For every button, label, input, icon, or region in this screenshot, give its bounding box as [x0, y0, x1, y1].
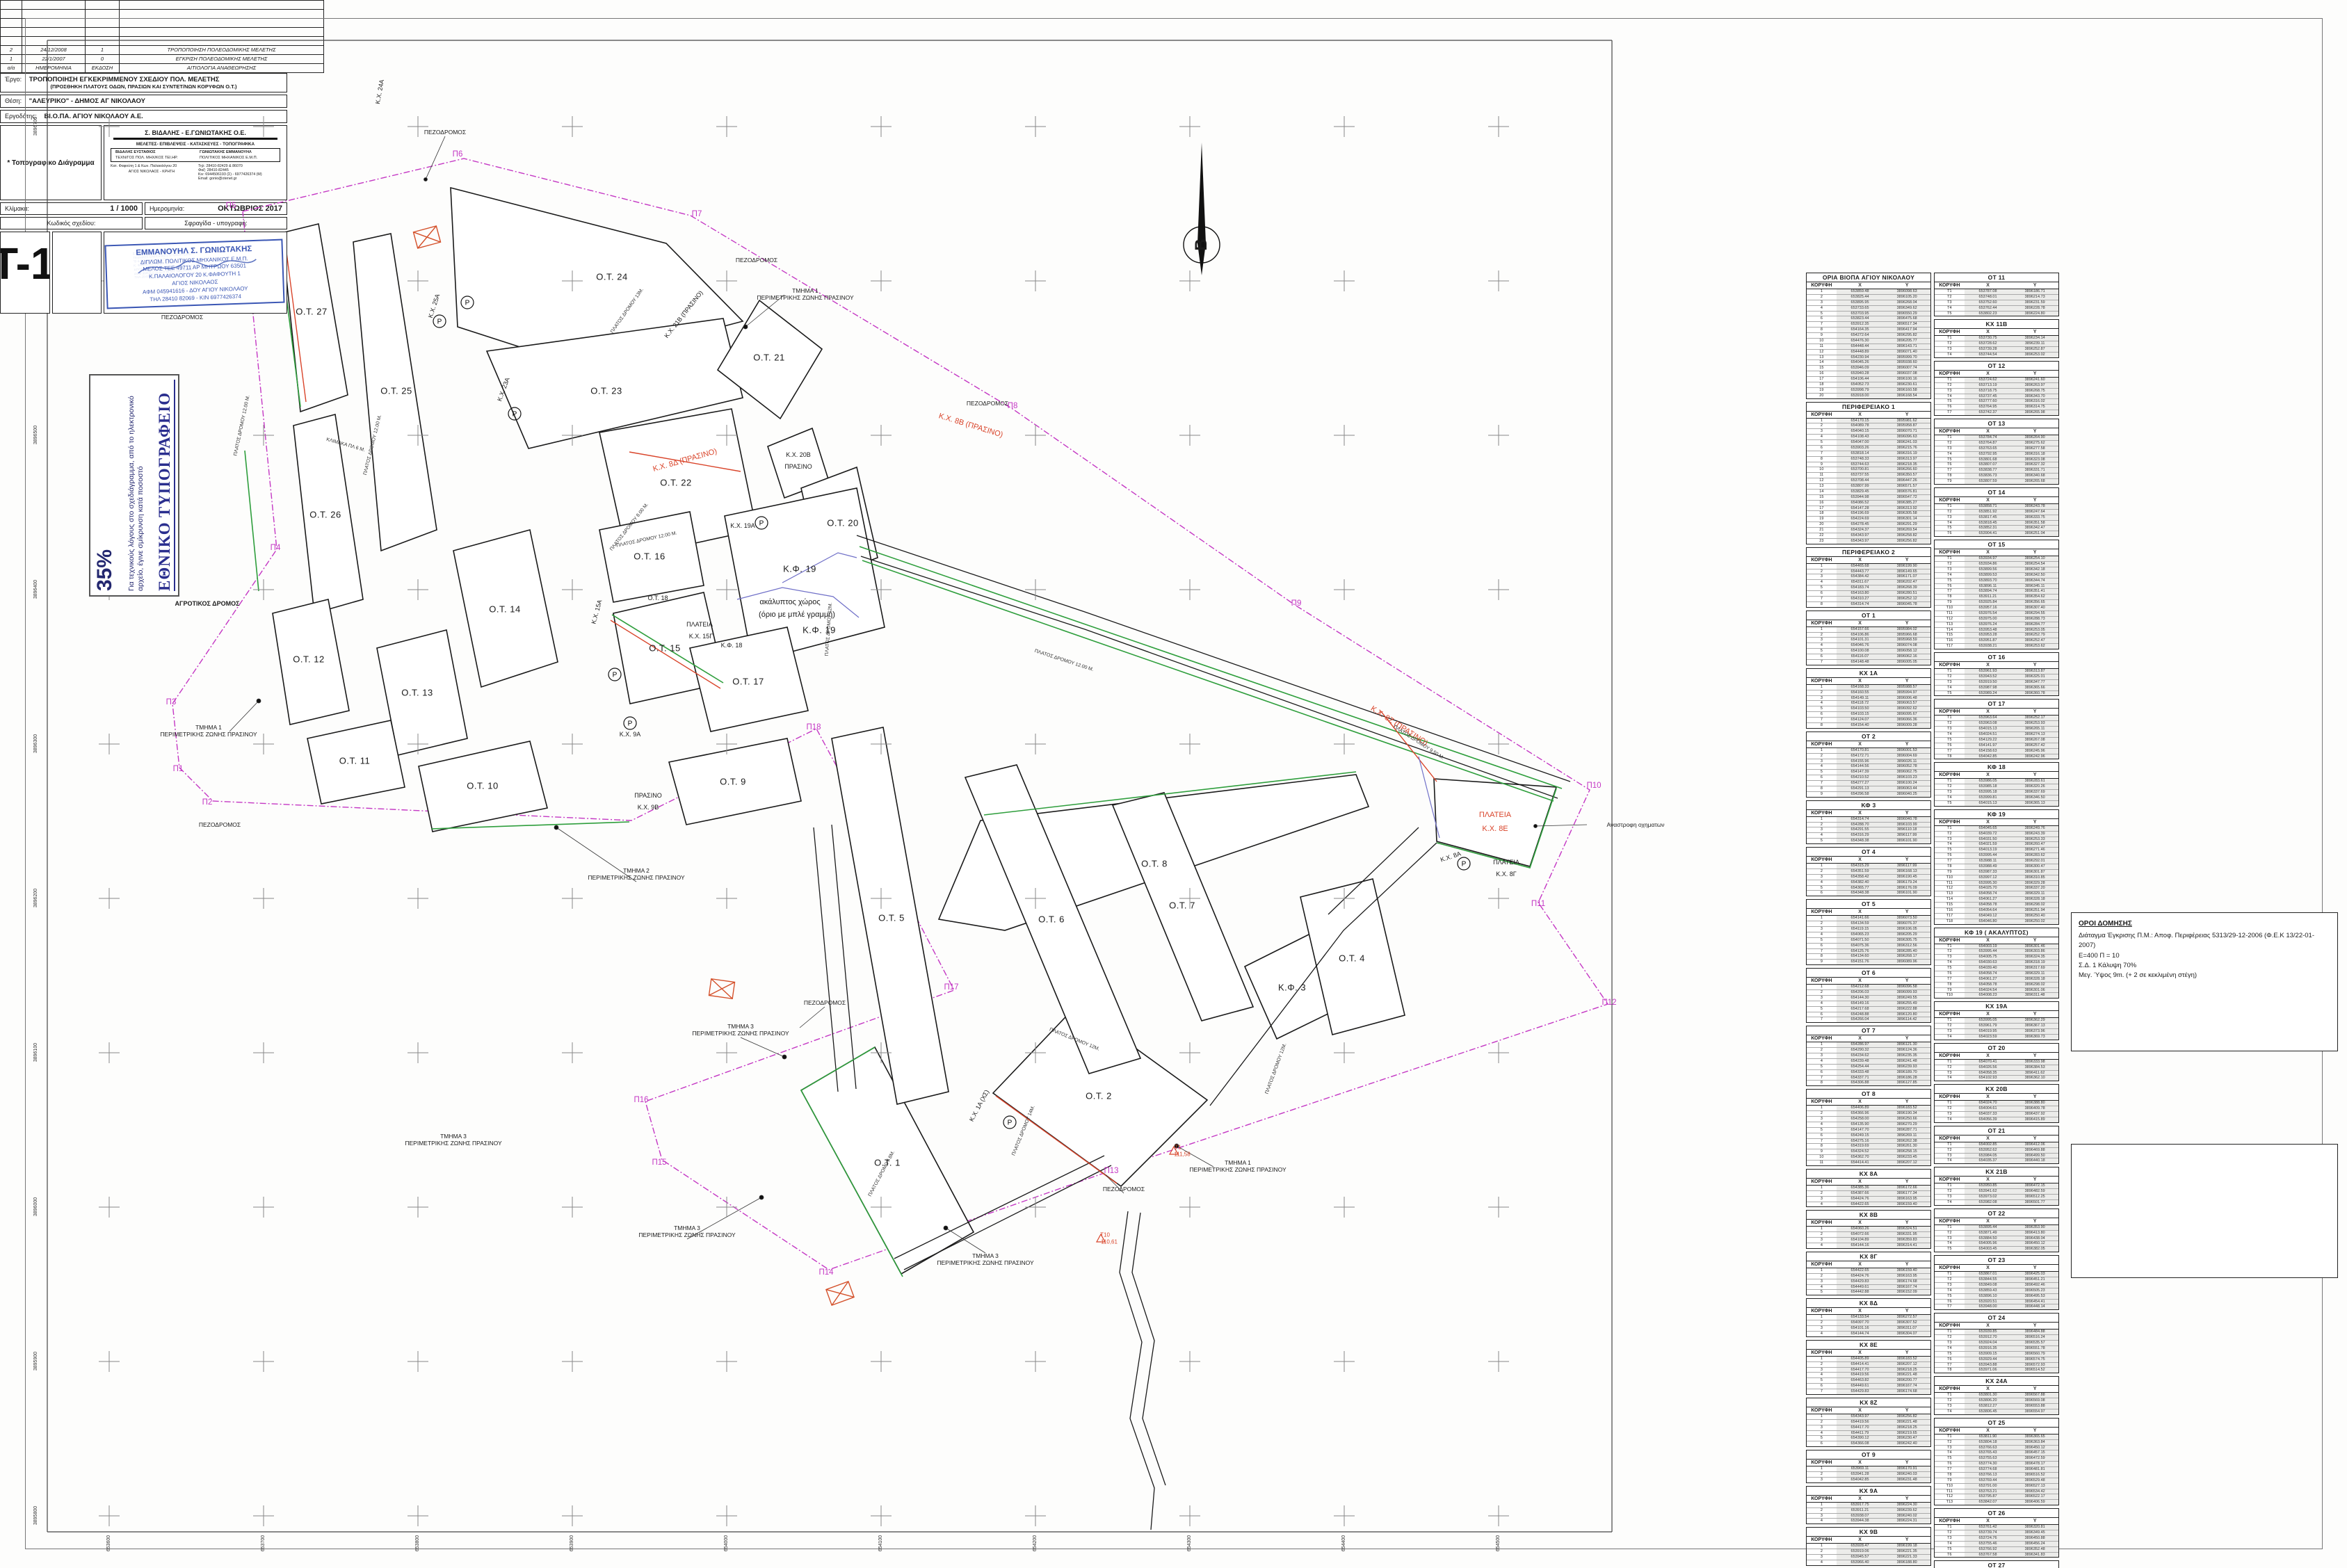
column-header: Y: [2011, 1011, 2058, 1017]
coordinate-table: ΚΧ 1ΑΚΟΡΥΦΗXY1654168.333895988.572654160…: [1806, 668, 1931, 729]
table-row: 3654291.553896110.18: [1807, 827, 1930, 833]
column-header: ΚΟΡΥΦΗ: [1807, 1350, 1837, 1356]
map-label: Κ.Χ. 9Α: [620, 731, 641, 738]
map-label: Κ.Φ. 19: [783, 564, 816, 574]
table-row: 5654217.683896222.88: [1807, 1007, 1930, 1012]
table-row: 2654172.713896004.69: [1807, 754, 1930, 759]
table-row: T4653859.433896505.23: [1935, 1288, 2058, 1294]
column-header: ΚΟΡΥΦΗ: [1935, 1053, 1965, 1059]
column-header: X: [1965, 1094, 2012, 1100]
table-row: T10653957.163896307.40: [1935, 606, 2058, 611]
coordinate-table-title: ΚΧ 8Γ: [1807, 1252, 1930, 1261]
table-row: 6653903.263896215.76: [1807, 446, 1930, 451]
table-row: 15653944.983896547.72: [1807, 495, 1930, 501]
coordinate-table-title: ΚΧ 24Α: [1935, 1377, 2058, 1386]
table-row: T1653761.423896320.81: [1935, 1525, 2058, 1530]
table-row: T7653988.113896292.01: [1935, 859, 2058, 864]
table-row: 6654103.153896095.67: [1807, 712, 1930, 718]
column-header: ΚΟΡΥΦΗ: [1935, 772, 1965, 778]
column-header: Y: [2011, 1053, 2058, 1059]
table-row: 7654310.273896252.12: [1807, 597, 1930, 602]
table-row: T2653851.923896247.64: [1935, 510, 2058, 515]
table-row: T13653976.243896284.77: [1935, 622, 2058, 628]
map-label: Ο.Τ. 7: [1169, 900, 1195, 911]
table-row: T4654035.373896440.18: [1935, 1158, 2058, 1163]
table-row: T10653791.003896527.13: [1935, 1484, 2058, 1489]
map-label: Π1: [173, 765, 184, 773]
table-row: T1653784.743896264.90: [1935, 435, 2058, 441]
coordinate-table-title: ΚΦ 19: [1935, 810, 2058, 819]
coordinate-table: ΚΧ 9ΒΚΟΡΥΦΗXY1653928.473896199.182653919…: [1806, 1527, 1931, 1566]
table-row: 20653918.003896168.54: [1807, 394, 1930, 398]
table-row: T2653748.013896214.73: [1935, 295, 2058, 300]
table-row: 6654075.363896312.56: [1807, 944, 1930, 949]
table-row: T5653777.603896316.02: [1935, 399, 2058, 405]
table-row: T3654019.953896373.96: [1935, 1029, 2058, 1035]
svg-text:P: P: [1462, 861, 1467, 868]
svg-text:P: P: [759, 520, 764, 528]
table-row: 7654266.043896114.42: [1807, 1017, 1930, 1022]
bottom-axis-tick: 654300: [1187, 1535, 1192, 1551]
column-header: Y: [2011, 329, 2058, 335]
table-row: 3653938.073896240.02: [1807, 1514, 1930, 1519]
table-row: 12654448.893896071.40: [1807, 350, 1930, 355]
table-row: 22654343.973896258.82: [1807, 533, 1930, 539]
table-row: T2653912.703896516.24: [1935, 1335, 2058, 1341]
table-row: 6654210.523896103.23: [1807, 775, 1930, 781]
building-terms-line: Ε=400 Π = 10: [2079, 951, 2330, 961]
table-row: T6653929.443896574.75: [1935, 1357, 2058, 1363]
column-header: ΚΟΡΥΦΗ: [1935, 662, 1965, 668]
building-terms-line: Σ.Δ. 1 Κάλυψη 70%: [2079, 961, 2330, 971]
table-row: 2654106.863895966.68: [1807, 633, 1930, 638]
table-row: T8653911.213896354.62: [1935, 595, 2058, 600]
table-row: 1654406.893896183.52: [1807, 1106, 1930, 1111]
column-header: Y: [2011, 282, 2058, 289]
reduction-percent: 35%: [93, 549, 117, 591]
table-row: T2653961.793896367.13: [1935, 1024, 2058, 1029]
map-label: 110,61: [1101, 1239, 1118, 1245]
map-label: Ο.Τ. 2: [1086, 1091, 1112, 1101]
map-label: Ο.Τ. 22: [660, 478, 691, 488]
table-row: T7653894.743896351.41: [1935, 589, 2058, 595]
coordinate-table: ΟΤ 4ΚΟΡΥΦΗXY1654315.293896117.992654351.…: [1806, 847, 1931, 896]
table-row: T15654058.783896298.02: [1935, 903, 2058, 908]
table-row: 2654443.773896149.65: [1807, 569, 1930, 575]
map-label: Ο.Τ. 20: [827, 518, 858, 528]
parking-icon: P: [1003, 1116, 1016, 1129]
table-row: 19654224.693896301.14: [1807, 517, 1930, 522]
map-label: ΠΛΑΤΕΙΑ: [686, 621, 713, 628]
column-header: Y: [2011, 1386, 2058, 1392]
coordinate-table: ΚΧ 8ΖΚΟΡΥΦΗXY1654343.973896256.822654419…: [1806, 1398, 1931, 1447]
coordinate-tables-column-2: ΟΤ 11ΚΟΡΥΦΗXYT1653787.083896186.71T26537…: [1934, 273, 2059, 1568]
column-header: ΚΟΡΥΦΗ: [1935, 1386, 1965, 1392]
coordinate-table: ΚΧ 24ΑΚΟΡΥΦΗXYT1653801.303896567.88T2653…: [1934, 1376, 2059, 1415]
map-label: Π6: [453, 150, 463, 159]
table-row: 3654417.703896218.25: [1807, 1425, 1930, 1431]
table-row: 2654206.033896099.93: [1807, 990, 1930, 996]
table-row: 6654449.613896167.74: [1807, 1384, 1930, 1389]
column-header: ΚΟΡΥΦΗ: [1807, 282, 1837, 289]
building-terms-line: Μεγ. Ύψος 9m. (+ 2 σε κεκλιμένη στέγη): [2079, 971, 2330, 980]
column-header: Y: [1883, 1308, 1930, 1314]
column-header: X: [1965, 1135, 2012, 1142]
column-header: ΚΟΡΥΦΗ: [1807, 810, 1837, 816]
column-header: X: [1965, 772, 2012, 778]
table-row: T4654030.633896318.19: [1935, 960, 2058, 966]
map-label: Π14: [818, 1268, 833, 1277]
table-row: T4654102.933896362.10: [1935, 1076, 2058, 1081]
column-header: Y: [1883, 412, 1930, 418]
column-header: ΚΟΡΥΦΗ: [1935, 1011, 1965, 1017]
column-header: ΚΟΡΥΦΗ: [1935, 1265, 1965, 1271]
coordinate-table: ΟΤ 11ΚΟΡΥΦΗXYT1653787.083896186.71T26537…: [1934, 273, 2059, 316]
coordinate-table: ΚΧ 8ΑΚΟΡΥΦΗXY1654385.363896172.662654387…: [1806, 1169, 1931, 1208]
table-row: 5654183.743896268.39: [1807, 585, 1930, 591]
svg-text:P: P: [437, 318, 442, 326]
column-header: ΚΟΡΥΦΗ: [1807, 412, 1837, 418]
column-header: Y: [1883, 620, 1930, 627]
table-row: T4654021.593896260.47: [1935, 842, 2058, 848]
column-header: Y: [1883, 1537, 1930, 1543]
table-row: T5653755.633896472.59: [1935, 1456, 2058, 1462]
map-label: Κ.Χ. 9Β: [638, 804, 659, 811]
table-row: T1653730.753896234.14: [1935, 336, 2058, 341]
table-row: 4654144.563896052.78: [1807, 764, 1930, 770]
table-row: T6653995.443896283.62: [1935, 853, 2058, 859]
coordinate-table: ΟΤ 5ΚΟΡΥΦΗXY1654141.663896073.502654134.…: [1806, 899, 1931, 965]
column-header: ΚΟΡΥΦΗ: [1807, 1035, 1837, 1042]
table-row: 4654311.673896202.47: [1807, 580, 1930, 585]
table-row: 8654319.693896261.30: [1807, 1144, 1930, 1149]
table-row: T2653963.083896253.93: [1935, 721, 2058, 727]
column-header: Y: [1883, 1407, 1930, 1414]
table-row: T4653987.983896365.66: [1935, 686, 2058, 691]
table-row: T7654061.273896328.18: [1935, 977, 2058, 983]
table-row: 1654170.153895981.62: [1807, 419, 1930, 424]
table-row: T3653899.563896342.18: [1935, 567, 2058, 573]
table-row: T7653838.773896331.71: [1935, 468, 2058, 474]
map-label: ΠΕΡΙΜΕΤΡΙΚΗΣ ΖΩΝΗΣ ΠΡΑΣΙΝΟΥ: [937, 1259, 1033, 1266]
table-row: T11653995.303896329.28: [1935, 881, 2058, 887]
coordinate-table: ΟΤ 8ΚΟΡΥΦΗXY1654406.893896183.522654366.…: [1806, 1089, 1931, 1166]
coordinate-table-title: ΟΤ 22: [1935, 1209, 2058, 1218]
column-header: ΚΟΡΥΦΗ: [1807, 1407, 1837, 1414]
table-row: T4654023.593896369.73: [1935, 1035, 2058, 1040]
table-row: 18654052.733896230.61: [1807, 382, 1930, 388]
column-header: ΚΟΡΥΦΗ: [1807, 1496, 1837, 1502]
table-row: T4653899.533896342.50: [1935, 573, 2058, 579]
coordinate-table-title: ΠΕΡΙΦΕΡΕΙΑΚΟ 1: [1807, 403, 1930, 412]
column-header: ΚΟΡΥΦΗ: [1807, 741, 1837, 747]
engineer-stamp: ΕΜΜΑΝΟΥΗΛ Σ. ΓΩΝΙΩΤΑΚΗΣ ΔΙΠΛΩΜ. ΠΟΛΙΤΙΚΟ…: [104, 239, 284, 309]
table-row: T6653774.303896478.17: [1935, 1462, 2058, 1467]
map-label: Κ.Φ. 3: [1278, 983, 1306, 993]
table-row: T14654061.273896328.18: [1935, 897, 2058, 903]
stamp-body-text: Για τεχνικούς λόγους στο σχεδιάγραμμα, α…: [127, 380, 145, 591]
column-header: Y: [2011, 371, 2058, 377]
coordinate-table-title: ΚΧ 8Ε: [1807, 1341, 1930, 1350]
table-row: T14653953.483896253.05: [1935, 628, 2058, 633]
map-label: Ο.Τ. 14: [489, 604, 520, 615]
table-row: T4653762.443896228.78: [1935, 306, 2058, 312]
column-header: ΚΟΡΥΦΗ: [1935, 1428, 1965, 1434]
table-row: T8653836.733896340.68: [1935, 474, 2058, 479]
column-header: X: [1837, 978, 1884, 984]
coordinate-table-title: ΚΧ 8Ζ: [1807, 1398, 1930, 1407]
table-row: 5654071.503896305.75: [1807, 938, 1930, 944]
bottom-axis-tick: 654200: [1033, 1535, 1038, 1551]
table-row: 3654155.963896026.11: [1807, 759, 1930, 765]
coordinate-table: ΟΤ 2ΚΟΡΥΦΗXY1654170.813896001.532654172.…: [1806, 732, 1931, 798]
map-label: Ο.Τ. 26: [309, 510, 341, 520]
north-arrow: [1184, 143, 1220, 275]
table-row: 4654316.293896117.99: [1807, 833, 1930, 839]
sheet-code-cell-2: [52, 232, 102, 314]
table-row: 2654366.963896190.34: [1807, 1111, 1930, 1117]
table-row: T1653858.713896243.78: [1935, 504, 2058, 510]
table-row: 6654116.073896062.16: [1807, 654, 1930, 660]
column-header: ΚΟΡΥΦΗ: [1935, 1218, 1965, 1225]
table-row: 4654135.903896270.29: [1807, 1122, 1930, 1128]
sheet-code: Τ-1: [0, 238, 50, 289]
map-label: ΤΜΗΜΑ 3: [674, 1225, 700, 1231]
bottom-axis-tick: 653600: [106, 1535, 111, 1551]
table-row: T5653896.103896495.53: [1935, 1294, 2058, 1300]
column-header: Y: [1883, 1035, 1930, 1042]
table-row: 2653911.213896239.62: [1807, 1508, 1930, 1514]
column-header: Y: [1883, 857, 1930, 863]
table-row: 1653917.753896224.30: [1807, 1503, 1930, 1508]
table-row: 8654314.743896045.78: [1807, 602, 1930, 607]
column-header: X: [1965, 709, 2012, 715]
table-row: 7654124.073896066.36: [1807, 718, 1930, 723]
table-row: 5654442.883896152.09: [1807, 1290, 1930, 1295]
table-row: T5653852.313896342.47: [1935, 526, 2058, 531]
map-label: Π11: [1531, 900, 1545, 908]
column-header: ΚΟΡΥΦΗ: [1935, 937, 1965, 944]
map-label: Π12: [1602, 999, 1616, 1007]
table-row: 13654230.943895999.70: [1807, 355, 1930, 361]
map-label: ΠΛΑΤΕΙΑ: [1479, 811, 1511, 819]
column-header: Y: [2011, 1518, 2058, 1524]
table-row: T7653948.003896448.14: [1935, 1304, 2058, 1309]
table-row: 17654147.283896313.92: [1807, 506, 1930, 512]
column-header: ΚΟΡΥΦΗ: [1807, 1308, 1837, 1314]
table-row: T3653763.653896277.58: [1935, 446, 2058, 452]
column-header: X: [1837, 557, 1884, 563]
map-label: Ο.Τ. 8: [1141, 859, 1168, 869]
column-header: Y: [1883, 1099, 1930, 1105]
table-row: 3654417.703896218.25: [1807, 1368, 1930, 1373]
column-header: Y: [2011, 1135, 2058, 1142]
building-terms-box: ΟΡΟΙ ΔΟΜΗΣΗΣ Διάταγμα Έγκρισης Π.Μ.: Απο…: [2071, 912, 2338, 1051]
coordinate-table-title: ΟΤ 4: [1807, 848, 1930, 857]
national-printing-stamp: 35% Για τεχνικούς λόγους στο σχεδιάγραμμ…: [89, 374, 179, 597]
coordinate-table-title: ΟΡΙΑ ΒΙΟΠΑ ΑΓΙΟΥ ΝΙΚΟΛΑΟΥ: [1807, 273, 1930, 282]
table-row: 3654424.763896163.95: [1807, 1197, 1930, 1202]
table-row: T1653961.933896313.87: [1935, 669, 2058, 674]
map-label: Ο.Τ. 24: [596, 272, 627, 282]
column-header: Y: [2011, 1323, 2058, 1329]
parking-icon: P: [608, 668, 621, 681]
map-label: Π10: [1586, 782, 1601, 790]
table-row: 4654422.653896159.40: [1807, 1202, 1930, 1207]
table-row: 4654065.233896205.29: [1807, 932, 1930, 938]
table-row: T2653952.623896469.88: [1935, 1148, 2058, 1154]
table-row: 1654060.263896324.51: [1807, 1227, 1930, 1232]
table-row: T7653774.683896481.81: [1935, 1467, 2058, 1473]
table-row: 14654045.263895938.60: [1807, 360, 1930, 366]
table-row: 11654448.443896143.71: [1807, 344, 1930, 350]
column-header: X: [1837, 1099, 1884, 1105]
table-row: T2653995.443896303.86: [1935, 949, 2058, 955]
column-header: X: [1965, 662, 2012, 668]
table-row: T7653742.373896265.98: [1935, 410, 2058, 415]
table-row: T6653920.513896454.41: [1935, 1300, 2058, 1305]
coordinate-table-title: ΟΤ 21: [1935, 1126, 2058, 1135]
table-row: 18654196.693896305.58: [1807, 511, 1930, 517]
signature-cell: Σ. ΒΙΔΑΛΗΣ - Ε. ΓΩΝΙΩΤΑΚΗΣ Ο.ΕΤΕΧΝΙΚΕΣ Ε…: [104, 232, 287, 314]
table-row: T1653801.303896567.88: [1935, 1393, 2058, 1398]
table-row: 4654144.163896314.41: [1807, 1243, 1930, 1248]
table-row: 1654212.683896096.58: [1807, 985, 1930, 990]
column-header: X: [1965, 329, 2012, 335]
coordinate-table-title: ΚΧ 8Β: [1807, 1211, 1930, 1220]
map-label: (όριο με μπλέ γραμμή): [759, 611, 835, 619]
bottom-axis-tick: 653700: [261, 1535, 266, 1551]
table-row: T1653939.853896484.88: [1935, 1329, 2058, 1335]
table-row: 5654348.383896101.90: [1807, 839, 1930, 843]
table-row: 4654239.483896241.48: [1807, 1059, 1930, 1065]
column-header: X: [1965, 1053, 2012, 1059]
column-header: ΚΟΡΥΦΗ: [1935, 549, 1965, 556]
column-header: X: [1965, 1177, 2012, 1183]
table-row: T2653934.863896254.54: [1935, 562, 2058, 567]
svg-text:P: P: [513, 411, 517, 419]
table-row: 11653737.553896350.57: [1807, 473, 1930, 478]
table-row: T1653934.973896254.10: [1935, 556, 2058, 562]
table-row: 1654157.663895984.02: [1807, 627, 1930, 633]
table-row: 6654249.153896269.11: [1807, 1133, 1930, 1139]
column-header: ΚΟΡΥΦΗ: [1935, 1323, 1965, 1329]
map-label: ΤΜΗΜΑ 1: [792, 287, 818, 294]
map-label: ΠΕΖΟΔΡΟΜΟΣ: [199, 821, 241, 828]
coordinate-table: ΚΦ 3ΚΟΡΥΦΗXY1654314.743896040.782654288.…: [1806, 800, 1931, 844]
table-row: T2653764.873896275.62: [1935, 441, 2058, 446]
table-row: T8653988.493896300.47: [1935, 864, 2058, 870]
column-header: ΚΟΡΥΦΗ: [1935, 329, 1965, 335]
table-row: T2653844.553896451.21: [1935, 1277, 2058, 1283]
table-row: 1653928.473896199.18: [1807, 1544, 1930, 1549]
coordinate-table: ΚΦ 19ΚΟΡΥΦΗXYT1654045.653896249.76T26540…: [1934, 809, 2059, 925]
map-label: Τ1: [1175, 1145, 1181, 1151]
table-row: 4653944.383896224.31: [1807, 1519, 1930, 1523]
column-header: X: [1965, 1265, 2012, 1271]
table-row: 4654449.613896167.74: [1807, 1285, 1930, 1291]
coordinate-table: ΟΤ 15ΚΟΡΥΦΗXYT1653934.973896254.10T26539…: [1934, 540, 2059, 649]
coordinate-table: ΟΤ 27ΚΟΡΥΦΗXYT1653754.403896462.14T26537…: [1934, 1560, 2059, 1568]
map-label: Ο.Τ. 18: [647, 595, 668, 601]
map-label: Κ.Χ. 15Γ: [689, 633, 713, 640]
coordinate-table: ΚΦ 18ΚΟΡΥΦΗXYT1653986.053896283.61T26539…: [1934, 762, 2059, 806]
table-row: 21654324.373896269.54: [1807, 528, 1930, 533]
column-header: X: [1837, 620, 1884, 627]
table-row: 6654366.083896242.40: [1807, 1441, 1930, 1446]
column-header: ΚΟΡΥΦΗ: [1807, 678, 1837, 684]
map-label: Ο.Τ. 5: [878, 913, 905, 923]
table-row: 3654258.003896250.66: [1807, 1117, 1930, 1122]
coordinate-table: ΟΤ 1ΚΟΡΥΦΗXY1654157.663895984.022654106.…: [1806, 611, 1931, 665]
map-label: ΠΕΡΙΜΕΤΡΙΚΗΣ ΖΩΝΗΣ ΠΡΑΣΙΝΟΥ: [405, 1140, 501, 1147]
column-header: Y: [1883, 741, 1930, 747]
coordinate-table-title: ΟΤ 27: [1935, 1561, 2058, 1568]
table-row: T10653997.123896310.85: [1935, 875, 2058, 881]
column-header: Y: [1883, 1261, 1930, 1268]
table-row: 2654089.783895958.87: [1807, 423, 1930, 429]
table-row: 8654154.403896009.28: [1807, 723, 1930, 728]
table-row: 5654463.823896200.77: [1807, 1378, 1930, 1384]
table-row: 3654101.313895968.59: [1807, 638, 1930, 643]
map-label: ΤΜΗΜΑ 3: [972, 1252, 999, 1259]
column-header: X: [1965, 428, 2012, 435]
table-row: T10654008.233896311.48: [1935, 993, 2058, 998]
column-header: Y: [2011, 662, 2058, 668]
coordinate-table: ΟΤ 25ΚΟΡΥΦΗXYT1653811.903896365.65T26538…: [1934, 1418, 2059, 1505]
table-row: T13653842.073896406.59: [1935, 1500, 2058, 1505]
coordinate-table: ΚΧ 20ΒΚΟΡΥΦΗXYT1654024.703896388.80T2654…: [1934, 1084, 2059, 1123]
table-row: T1653724.623896241.60: [1935, 378, 2058, 383]
table-row: T1653787.083896186.71: [1935, 289, 2058, 295]
map-label: Ο.Τ. 9: [720, 777, 746, 787]
table-row: T9653807.593896265.68: [1935, 479, 2058, 484]
table-row: T9653987.333896301.87: [1935, 870, 2058, 875]
map-label: Ο.Τ. 16: [634, 551, 665, 562]
column-header: Y: [2011, 1094, 2058, 1100]
table-row: T7654158.633896245.96: [1935, 749, 2058, 754]
column-header: X: [1837, 282, 1884, 289]
table-row: T3653995.183896337.69: [1935, 790, 2058, 795]
table-row: 2654072.663896331.95: [1807, 1232, 1930, 1238]
column-header: Y: [2011, 549, 2058, 556]
table-row: 7654148.483896005.05: [1807, 660, 1930, 665]
table-row: T3653919.503896347.77: [1935, 680, 2058, 686]
map-label: Π4: [271, 544, 281, 552]
table-row: T2653713.193896263.97: [1935, 383, 2058, 389]
table-row: T3653884.503896438.04: [1935, 1236, 2058, 1242]
table-row: T4653806.453896554.97: [1935, 1409, 2058, 1414]
table-row: T3654015.133896265.11: [1935, 727, 2058, 732]
map-label: ΠΕΡΙΜΕΤΡΙΚΗΣ ΖΩΝΗΣ ΠΡΑΣΙΝΟΥ: [160, 731, 257, 738]
table-row: 6653823.443896475.68: [1807, 316, 1930, 322]
coordinate-table-title: ΟΤ 26: [1935, 1509, 2058, 1518]
column-header: X: [1837, 678, 1884, 684]
table-row: 3654149.113896006.48: [1807, 696, 1930, 702]
column-header: ΚΟΡΥΦΗ: [1935, 709, 1965, 715]
left-axis-tick: 3896400: [33, 580, 38, 599]
coordinate-table-title: ΟΤ 1: [1807, 611, 1930, 620]
table-row: 7654277.273896100.24: [1807, 781, 1930, 786]
table-row: T2653871.493896413.80: [1935, 1231, 2058, 1236]
table-row: 1654286.973896121.30: [1807, 1042, 1930, 1048]
table-row: T4653737.453896343.70: [1935, 394, 2058, 400]
table-row: 1654141.663896073.50: [1807, 916, 1930, 921]
table-row: T11653976.543896294.55: [1935, 611, 2058, 617]
table-row: 8654134.603896268.17: [1807, 954, 1930, 960]
table-row: T4654056.393896415.89: [1935, 1117, 2058, 1122]
table-row: T1654070.413896333.98: [1935, 1060, 2058, 1065]
